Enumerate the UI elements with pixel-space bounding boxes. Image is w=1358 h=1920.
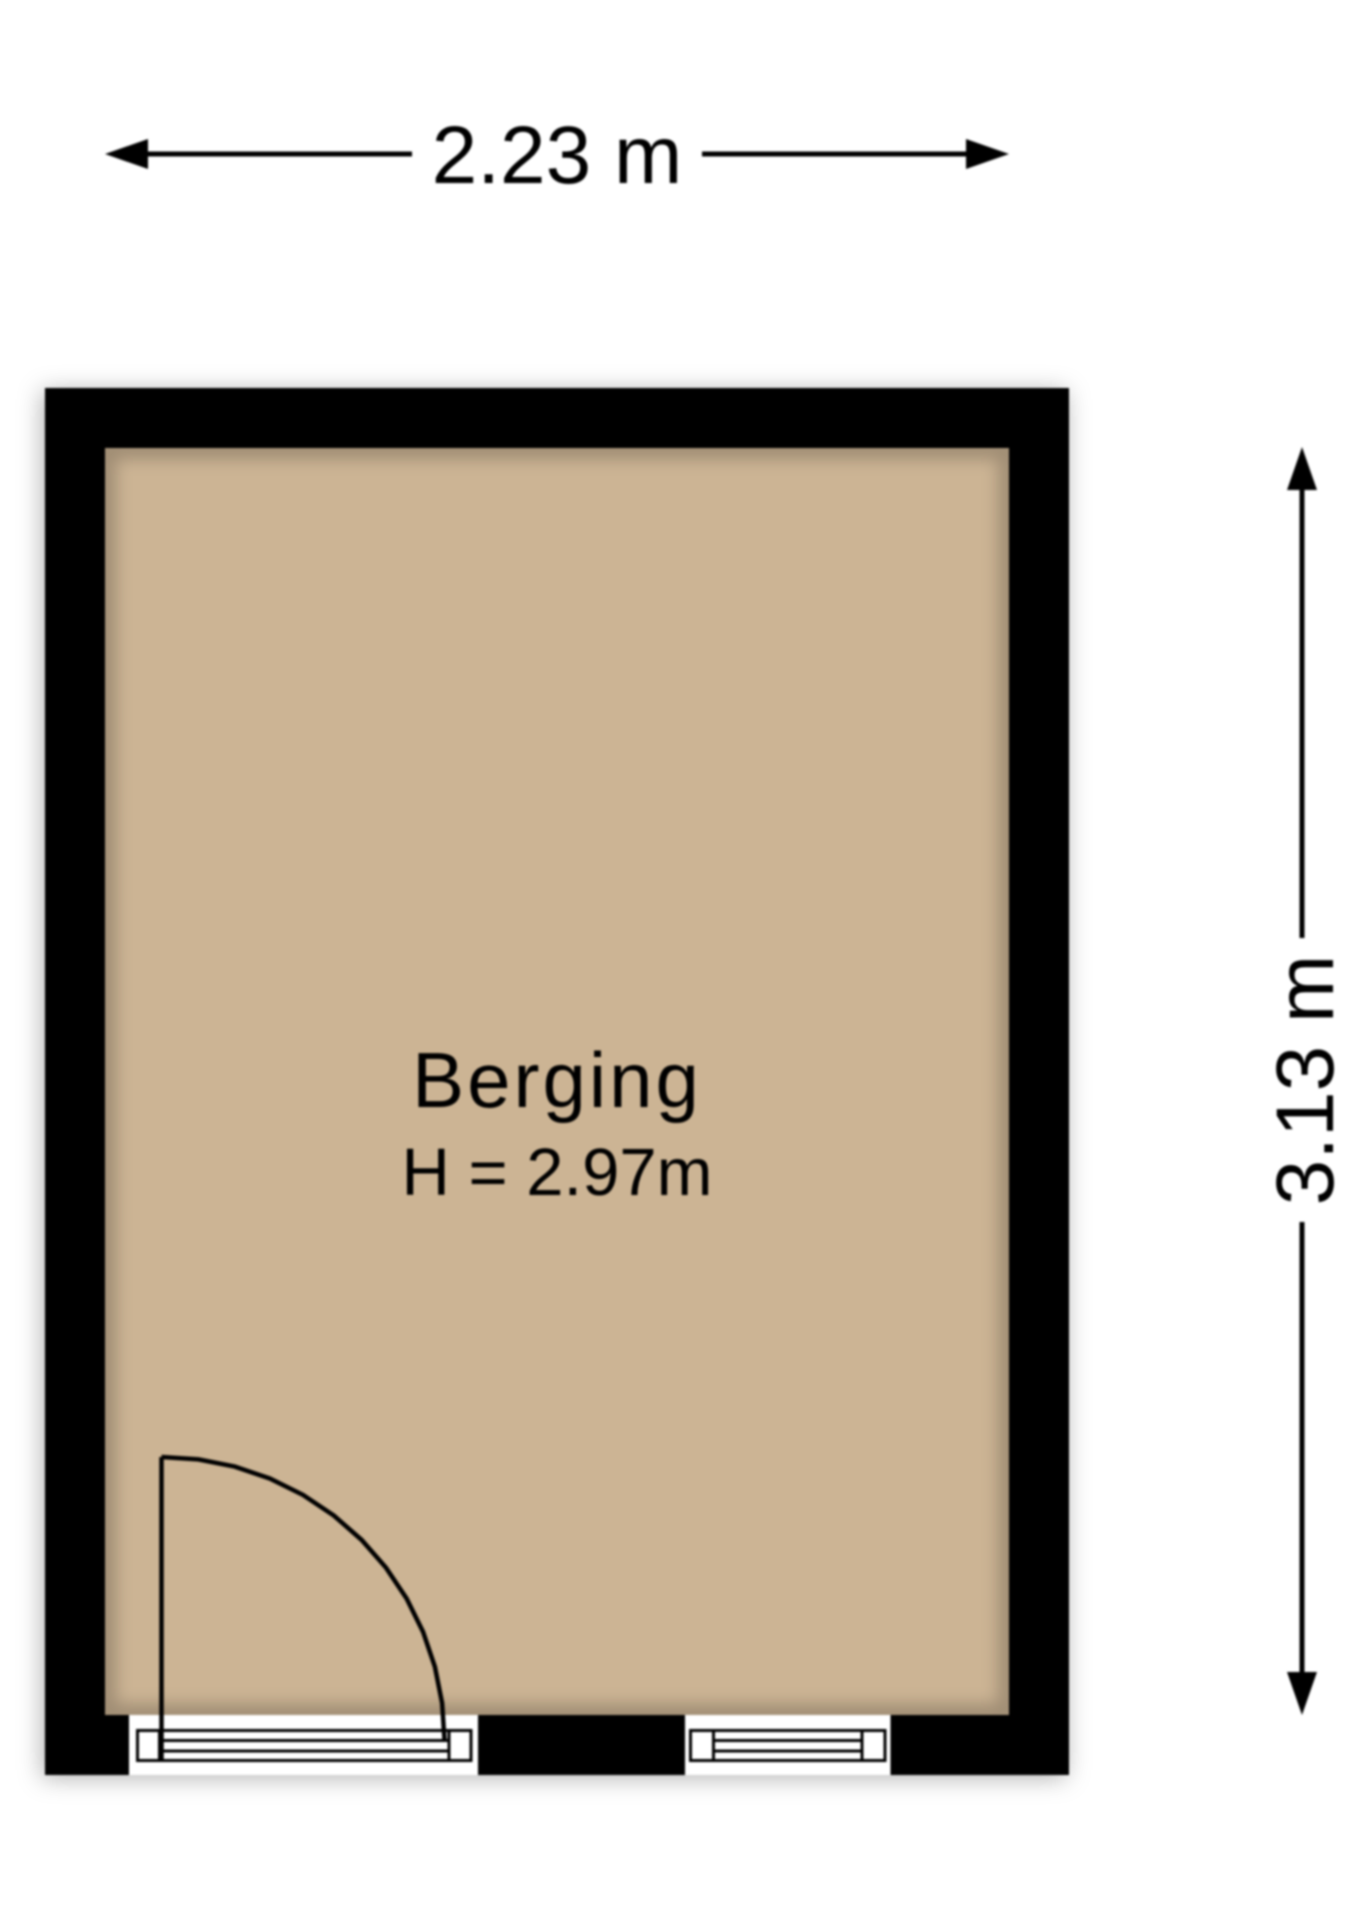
svg-text:3.13 m: 3.13 m [1260, 955, 1351, 1206]
svg-text:Berging: Berging [412, 1036, 702, 1124]
svg-text:H = 2.97m: H = 2.97m [402, 1135, 713, 1210]
svg-text:2.23 m: 2.23 m [432, 110, 683, 201]
